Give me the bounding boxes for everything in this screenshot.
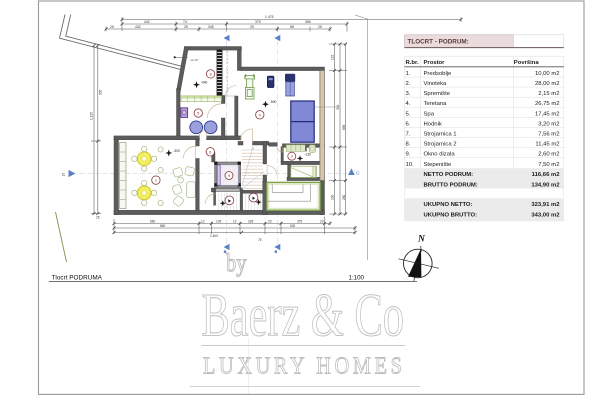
svg-text:25: 25 [110, 25, 114, 29]
svg-text:74: 74 [183, 20, 187, 24]
svg-text:1.475: 1.475 [265, 15, 274, 19]
svg-text:11,45 m2: 11,45 m2 [535, 142, 559, 148]
svg-text:R.br.: R.br. [406, 60, 419, 66]
svg-text:122: 122 [331, 54, 335, 60]
svg-text:860: 860 [160, 224, 166, 228]
svg-text:116,66 m2: 116,66 m2 [532, 172, 561, 178]
svg-text:Hodnik: Hodnik [424, 121, 442, 127]
svg-text:5.: 5. [406, 111, 411, 117]
svg-text:290: 290 [331, 194, 335, 200]
svg-text:Prostor: Prostor [424, 60, 446, 66]
svg-text:3,20 m2: 3,20 m2 [538, 121, 559, 127]
svg-text:NETTO PODRUM:: NETTO PODRUM: [424, 172, 474, 178]
svg-text:17,45 m2: 17,45 m2 [535, 111, 560, 117]
svg-text:10,00 m2: 10,00 m2 [535, 71, 560, 77]
svg-text:Okno dizala: Okno dizala [424, 152, 456, 158]
svg-text:366: 366 [305, 20, 311, 24]
svg-text:25: 25 [184, 25, 188, 29]
svg-text:375: 375 [297, 219, 303, 223]
svg-text:25: 25 [318, 25, 322, 29]
svg-text:Strojarnica 2: Strojarnica 2 [424, 142, 457, 148]
svg-text:Spremište: Spremište [424, 91, 451, 97]
svg-text:9.: 9. [406, 152, 411, 158]
svg-text:205: 205 [99, 89, 103, 95]
svg-text:26,75 m2: 26,75 m2 [535, 101, 560, 107]
svg-text:25: 25 [250, 25, 254, 29]
svg-text:345: 345 [208, 25, 214, 29]
svg-text:Strojarnica 1: Strojarnica 1 [424, 132, 457, 138]
svg-text:23: 23 [268, 219, 272, 223]
svg-text:2,60 m2: 2,60 m2 [538, 152, 559, 158]
svg-text:14.12°: 14.12° [190, 58, 198, 62]
svg-text:Teretana: Teretana [424, 101, 448, 107]
svg-text:1:100: 1:100 [349, 275, 365, 282]
svg-text:105: 105 [216, 219, 222, 223]
svg-text:7,56 m2: 7,56 m2 [538, 132, 559, 138]
svg-text:10.: 10. [406, 162, 415, 168]
svg-text:-040: -040 [201, 80, 208, 84]
svg-text:630: 630 [290, 224, 296, 228]
svg-text:BRUTTO PODRUM:: BRUTTO PODRUM: [424, 182, 478, 188]
svg-text:1.400: 1.400 [210, 234, 218, 238]
svg-text:Spa: Spa [424, 111, 435, 117]
svg-text:4.: 4. [406, 101, 411, 107]
svg-text:-500: -500 [270, 100, 277, 104]
svg-text:LUXURY HOMES: LUXURY HOMES [203, 352, 406, 379]
svg-text:2.: 2. [406, 81, 411, 87]
svg-text:442: 442 [144, 20, 150, 24]
svg-text:260: 260 [342, 194, 346, 200]
svg-text:Površina: Površina [514, 60, 540, 66]
svg-text:6.: 6. [406, 121, 411, 127]
svg-text:TLOCRT - PODRUM:: TLOCRT - PODRUM: [408, 38, 469, 45]
svg-text:328: 328 [248, 219, 254, 223]
svg-text:12: 12 [201, 219, 205, 223]
svg-text:25: 25 [96, 216, 100, 220]
svg-text:8.: 8. [406, 142, 411, 148]
svg-text:323,91 m2: 323,91 m2 [531, 202, 560, 208]
svg-text:Baerz & Co: Baerz & Co [202, 282, 404, 349]
svg-text:Predsoblje: Predsoblje [424, 71, 453, 77]
svg-text:7.: 7. [406, 132, 411, 138]
svg-text:88: 88 [290, 25, 294, 29]
svg-text:134,90 m2: 134,90 m2 [531, 182, 560, 188]
svg-text:UKUPNO NETTO:: UKUPNO NETTO: [424, 202, 473, 208]
svg-text:Stepenište: Stepenište [424, 162, 453, 168]
svg-text:by: by [226, 249, 247, 276]
svg-text:3.: 3. [406, 91, 411, 97]
svg-text:858: 858 [342, 124, 346, 130]
svg-text:-300: -300 [173, 149, 180, 153]
svg-text:Vinoteka: Vinoteka [424, 81, 448, 87]
svg-text:23: 23 [320, 219, 324, 223]
svg-text:375: 375 [255, 20, 261, 24]
svg-text:12: 12 [233, 219, 237, 223]
svg-text:G: G [356, 171, 360, 176]
svg-text:28,00 m2: 28,00 m2 [535, 81, 560, 87]
svg-text:UKUPNO BRUTTO:: UKUPNO BRUTTO: [424, 212, 478, 218]
svg-text:75: 75 [258, 238, 262, 242]
svg-text:1.125: 1.125 [90, 112, 94, 120]
svg-text:7,50 m2: 7,50 m2 [538, 162, 559, 168]
svg-text:432: 432 [135, 25, 141, 29]
svg-text:343,00 m2: 343,00 m2 [531, 212, 560, 218]
svg-text:2,15 m2: 2,15 m2 [538, 91, 559, 97]
svg-text:-130: -130 [304, 153, 311, 157]
svg-text:1.: 1. [406, 71, 411, 77]
svg-text:Tlocrt PODRUMA: Tlocrt PODRUMA [52, 274, 103, 281]
svg-text:C: C [62, 172, 66, 177]
svg-text:N: N [417, 235, 426, 245]
svg-text:660: 660 [150, 219, 156, 223]
